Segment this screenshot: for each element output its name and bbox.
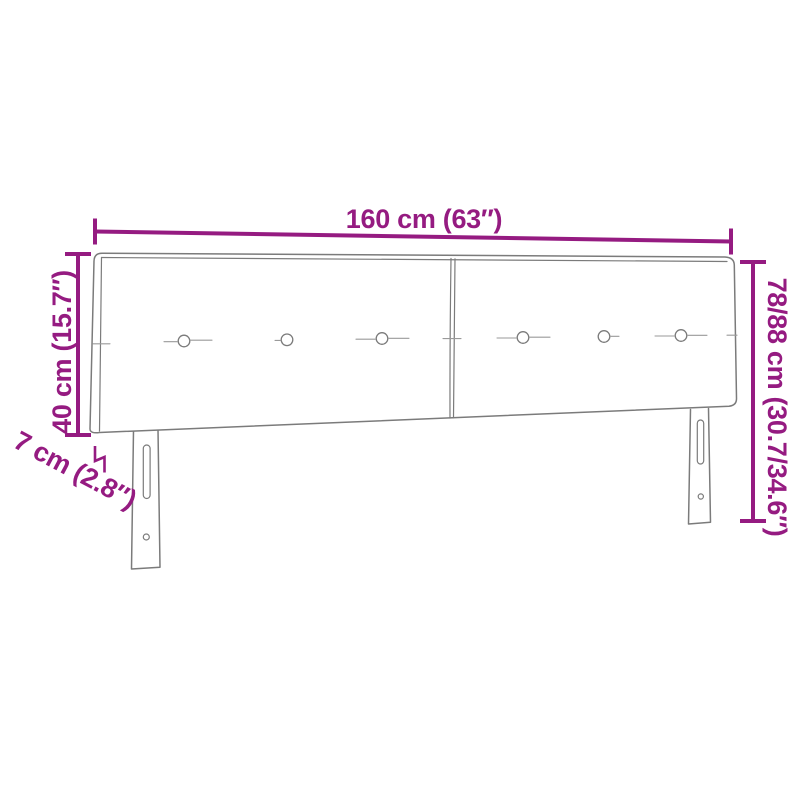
tufting-button xyxy=(376,333,388,345)
right-leg-hole xyxy=(698,494,703,499)
left-leg xyxy=(132,430,161,570)
tufting-button xyxy=(598,331,610,343)
width-dimension-label: 160 cm (63″) xyxy=(346,204,502,234)
depth-dimension-label: 7 cm (2.8″) xyxy=(9,425,142,514)
dimension-diagram-canvas: 160 cm (63″) 40 cm (15.7″) 78/88 cm (30.… xyxy=(0,0,800,800)
tufting-button xyxy=(517,332,529,344)
tufting-button xyxy=(675,330,687,342)
tufting-button xyxy=(281,334,293,346)
panel-height-dimension-label: 40 cm (15.7″) xyxy=(47,270,77,434)
right-leg xyxy=(689,409,711,525)
left-leg-hole xyxy=(143,534,149,540)
headboard-drawing xyxy=(90,253,737,569)
tufting-button xyxy=(178,335,190,347)
left-leg-slot xyxy=(143,445,150,499)
right-leg-slot xyxy=(697,420,703,464)
headboard-dimension-diagram: 160 cm (63″) 40 cm (15.7″) 78/88 cm (30.… xyxy=(0,0,800,800)
total-height-dimension-label: 78/88 cm (30.7/34.6″) xyxy=(762,278,792,537)
